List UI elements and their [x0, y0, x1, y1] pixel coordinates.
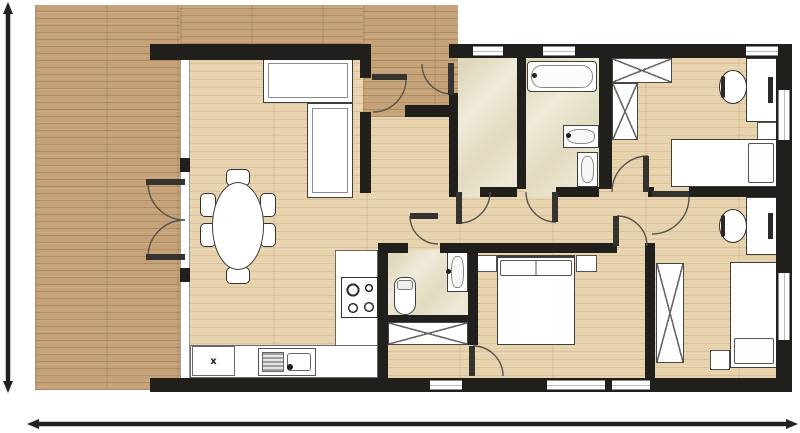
- wall-living-right-lower: [360, 112, 371, 193]
- glass-wall-living: [180, 58, 190, 378]
- bathtub-tap: [532, 73, 537, 78]
- wc-basin-tap: [446, 269, 451, 274]
- deck-entry-porch: [363, 5, 458, 117]
- sink-faucet: [287, 364, 293, 370]
- wall-hall-seg-c: [648, 187, 654, 197]
- bedroom2-bed: [730, 262, 778, 368]
- wall-living-right-upper: [360, 44, 371, 78]
- wall-master-left: [468, 243, 478, 345]
- wall-hall-seg-d: [689, 187, 778, 197]
- bedroom2-wardrobe: [656, 263, 684, 363]
- bedroom1-chair: [719, 70, 747, 104]
- master-nightstand-left: [477, 255, 497, 272]
- wall-porch-stub: [405, 105, 449, 117]
- bedroom2-chair: [719, 209, 747, 243]
- window-top-2: [543, 46, 575, 56]
- tile-entry-hall: [458, 58, 517, 197]
- deck-left: [35, 5, 180, 390]
- wall-hall-seg-b: [556, 187, 599, 197]
- master-bed: [497, 255, 575, 345]
- window-bottom-3: [612, 380, 650, 390]
- bedroom1-wardrobe-top: [612, 58, 672, 83]
- window-top-3: [746, 46, 778, 56]
- bedroom2-desk: [746, 197, 778, 255]
- stove: [341, 277, 378, 318]
- wc-toilet: [394, 277, 416, 315]
- deck-top-strip: [180, 5, 363, 44]
- wall-wc-bottom: [378, 315, 478, 322]
- window-top-1: [473, 46, 503, 56]
- wall-master-right: [645, 243, 655, 378]
- bathroom-basin-tap: [566, 133, 571, 138]
- glass-post-lower: [180, 268, 190, 282]
- wall-bottom: [150, 378, 792, 392]
- bathroom-toilet: [577, 152, 598, 187]
- wall-entry-bath-divider: [517, 58, 526, 189]
- wall-entry-left: [449, 93, 458, 197]
- master-nightstand-right: [576, 255, 597, 272]
- bedroom1-bed: [671, 139, 778, 187]
- sofa-back-section: [263, 58, 353, 103]
- bedroom2-nightstand: [710, 350, 730, 370]
- kitchen-sink: [258, 348, 316, 376]
- wall-corridor-b: [440, 243, 617, 253]
- hall-wardrobe: [388, 322, 468, 345]
- window-right-2: [778, 273, 790, 340]
- wall-hall-seg-a: [480, 187, 517, 197]
- bedroom1-wardrobe-side: [612, 83, 638, 140]
- floor-plan: x: [0, 0, 800, 433]
- wall-top-left: [150, 44, 363, 60]
- bathtub: [527, 61, 597, 92]
- bedroom1-desk: [746, 58, 778, 122]
- wall-kitchen-wc: [378, 243, 388, 378]
- appliance-x-label: x: [192, 346, 235, 376]
- window-right-1: [778, 90, 790, 140]
- glass-post-upper: [180, 158, 190, 172]
- window-bottom-2: [547, 380, 605, 390]
- sofa-side-section: [307, 103, 353, 198]
- window-bottom-1: [430, 380, 462, 390]
- wall-bath-bedroom-divider: [599, 44, 612, 189]
- dining-table: [212, 182, 264, 270]
